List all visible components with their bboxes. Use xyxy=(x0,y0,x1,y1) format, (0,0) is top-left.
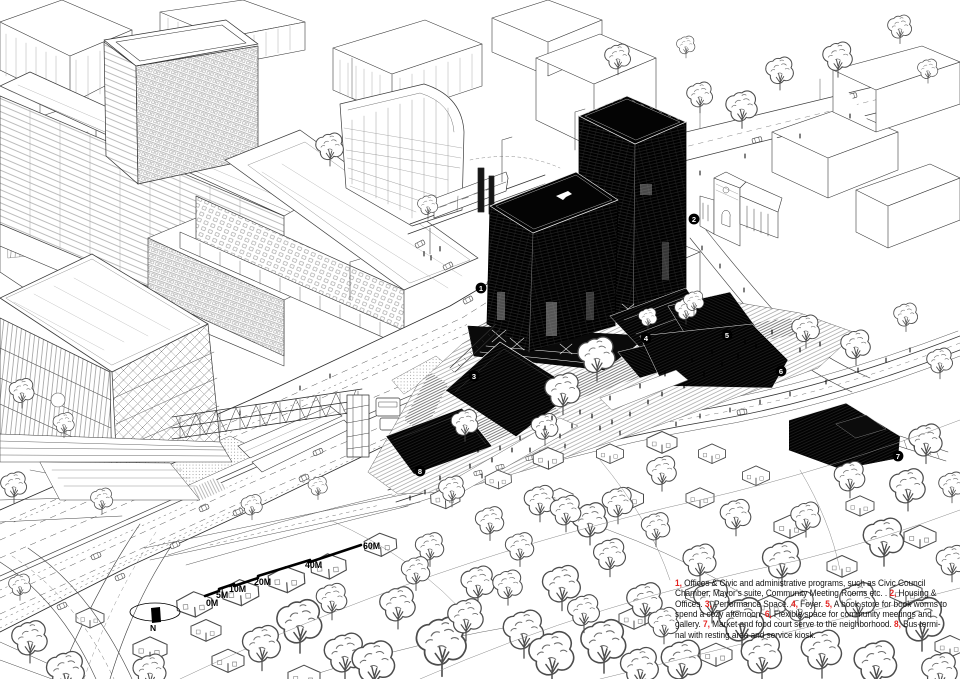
svg-text:60M: 60M xyxy=(363,541,380,551)
svg-text:1: 1 xyxy=(479,284,483,293)
svg-text:2: 2 xyxy=(692,215,696,224)
svg-text:3: 3 xyxy=(472,372,476,381)
svg-text:N: N xyxy=(150,623,156,633)
svg-text:6: 6 xyxy=(779,367,783,376)
svg-text:8: 8 xyxy=(418,467,422,476)
svg-text:20M: 20M xyxy=(254,577,271,587)
svg-text:5M: 5M xyxy=(216,590,228,600)
svg-text:40M: 40M xyxy=(305,560,322,570)
svg-text:10M: 10M xyxy=(229,584,246,594)
svg-text:7: 7 xyxy=(896,452,900,461)
svg-text:5: 5 xyxy=(725,331,729,340)
